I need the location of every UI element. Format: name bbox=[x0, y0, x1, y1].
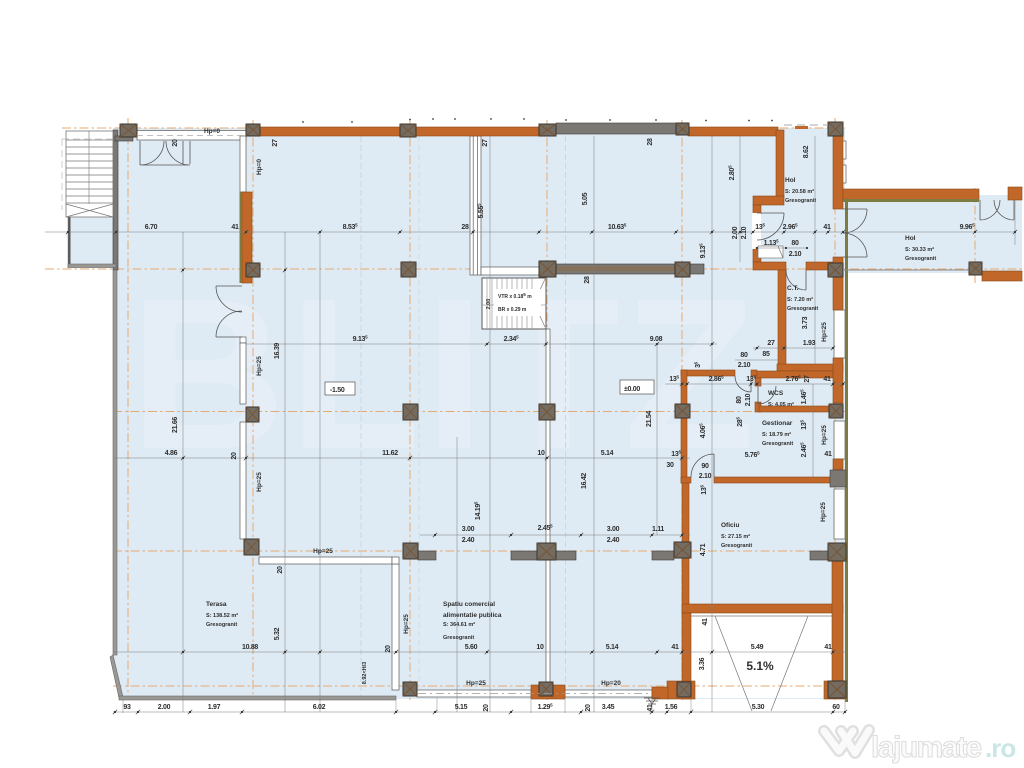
svg-text:Hp=25: Hp=25 bbox=[821, 425, 828, 445]
svg-text:80: 80 bbox=[736, 396, 743, 404]
svg-text:1.11: 1.11 bbox=[652, 526, 664, 533]
svg-text:5.30: 5.30 bbox=[752, 704, 765, 711]
svg-text:41: 41 bbox=[824, 451, 832, 458]
svg-text:1.295: 1.295 bbox=[538, 703, 553, 712]
svg-text:Hp=25: Hp=25 bbox=[403, 614, 410, 634]
svg-text:3.00: 3.00 bbox=[607, 526, 620, 533]
svg-text:8.92<H/3: 8.92<H/3 bbox=[362, 662, 368, 684]
svg-text:20: 20 bbox=[385, 645, 392, 653]
svg-text:Spatiu comercial: Spatiu comercial bbox=[443, 601, 495, 608]
svg-text:28: 28 bbox=[584, 276, 591, 284]
svg-text:90: 90 bbox=[701, 463, 709, 470]
svg-text:21.54: 21.54 bbox=[646, 411, 653, 427]
svg-text:BR x 0.29 m: BR x 0.29 m bbox=[498, 307, 527, 313]
svg-text:2.00: 2.00 bbox=[486, 299, 492, 310]
svg-text:10: 10 bbox=[537, 450, 545, 457]
svg-text:S: 364.61 m²: S: 364.61 m² bbox=[443, 621, 475, 628]
svg-text:1.93: 1.93 bbox=[803, 340, 816, 347]
svg-text:-1.50: -1.50 bbox=[330, 387, 345, 394]
svg-text:Gresogranit: Gresogranit bbox=[785, 198, 816, 204]
svg-text:27: 27 bbox=[767, 340, 775, 347]
svg-text:41: 41 bbox=[231, 224, 239, 231]
svg-text:2.10: 2.10 bbox=[789, 251, 802, 258]
svg-text:5.05: 5.05 bbox=[582, 192, 589, 205]
svg-text:C.T.: C.T. bbox=[787, 285, 799, 292]
svg-text:S: 18.79 m²: S: 18.79 m² bbox=[762, 431, 791, 438]
svg-text:41: 41 bbox=[647, 704, 654, 712]
svg-text:alimentatie publica: alimentatie publica bbox=[443, 612, 502, 619]
svg-text:Gestionar: Gestionar bbox=[762, 420, 793, 427]
svg-text:5.60: 5.60 bbox=[465, 644, 478, 651]
svg-text:2.10: 2.10 bbox=[741, 226, 748, 239]
svg-text:60: 60 bbox=[832, 704, 840, 711]
svg-text:80: 80 bbox=[791, 240, 799, 247]
svg-text:Hp=20: Hp=20 bbox=[601, 680, 621, 687]
svg-text:S: 30.33 m²: S: 30.33 m² bbox=[905, 246, 934, 253]
svg-text:2.40: 2.40 bbox=[462, 537, 475, 544]
svg-text:S: 7.20 m²: S: 7.20 m² bbox=[787, 296, 813, 303]
svg-text:11.62: 11.62 bbox=[382, 450, 398, 457]
svg-text:41: 41 bbox=[702, 618, 709, 626]
svg-text:4.71: 4.71 bbox=[700, 543, 707, 556]
svg-text:5.14: 5.14 bbox=[606, 644, 619, 651]
svg-text:Gresogranit: Gresogranit bbox=[206, 622, 237, 628]
svg-text:5.32: 5.32 bbox=[274, 627, 281, 640]
svg-text:16.39: 16.39 bbox=[274, 343, 281, 359]
svg-text:27: 27 bbox=[272, 139, 279, 147]
svg-text:Gresogranit: Gresogranit bbox=[762, 441, 793, 447]
svg-text:Hp=25: Hp=25 bbox=[256, 356, 263, 376]
svg-text:Hp=25: Hp=25 bbox=[820, 502, 827, 522]
svg-text:20: 20 bbox=[277, 566, 284, 574]
svg-text:2.10: 2.10 bbox=[738, 362, 751, 369]
svg-text:20: 20 bbox=[585, 704, 592, 712]
svg-text:Hol: Hol bbox=[785, 177, 796, 184]
svg-text:10.88: 10.88 bbox=[242, 644, 258, 651]
svg-text:Hp=25: Hp=25 bbox=[256, 472, 263, 492]
svg-text:27: 27 bbox=[482, 139, 489, 147]
svg-text:S: 20.58 m²: S: 20.58 m² bbox=[785, 188, 814, 195]
svg-text:6.02: 6.02 bbox=[313, 704, 326, 711]
svg-text:2.00: 2.00 bbox=[158, 704, 171, 711]
svg-text:5.1%: 5.1% bbox=[746, 659, 774, 673]
svg-text:2.10: 2.10 bbox=[699, 473, 712, 480]
svg-text:16.42: 16.42 bbox=[581, 473, 588, 489]
svg-text:41: 41 bbox=[823, 376, 831, 383]
svg-text:20: 20 bbox=[172, 139, 179, 147]
svg-text:3.36: 3.36 bbox=[699, 657, 706, 670]
svg-text:S: 27.15 m²: S: 27.15 m² bbox=[721, 533, 750, 540]
svg-text:Hol: Hol bbox=[905, 235, 916, 242]
svg-text:S: 4.05 m²: S: 4.05 m² bbox=[768, 401, 794, 408]
svg-text:.ro: .ro bbox=[985, 733, 1015, 763]
svg-text:Hp=0: Hp=0 bbox=[204, 128, 220, 135]
svg-text:20: 20 bbox=[231, 452, 238, 460]
svg-text:Hp=25: Hp=25 bbox=[313, 548, 333, 555]
svg-text:±0.00: ±0.00 bbox=[624, 386, 640, 393]
svg-text:S: 138.52 m²: S: 138.52 m² bbox=[206, 612, 238, 619]
svg-text:2.40: 2.40 bbox=[607, 537, 620, 544]
svg-text:10: 10 bbox=[536, 644, 544, 651]
svg-text:41: 41 bbox=[671, 644, 679, 651]
svg-text:41: 41 bbox=[824, 644, 832, 651]
svg-text:9.08: 9.08 bbox=[650, 336, 663, 343]
svg-text:8.62: 8.62 bbox=[803, 145, 810, 158]
svg-text:lajumate: lajumate bbox=[871, 731, 982, 764]
svg-text:27: 27 bbox=[804, 375, 811, 383]
svg-text:20: 20 bbox=[483, 704, 490, 712]
svg-text:1.97: 1.97 bbox=[208, 704, 221, 711]
svg-text:41: 41 bbox=[823, 224, 831, 231]
svg-text:VTR x 0.185 m: VTR x 0.185 m bbox=[498, 292, 532, 300]
svg-text:Gresogranit: Gresogranit bbox=[905, 256, 936, 262]
svg-text:Hp=25: Hp=25 bbox=[466, 680, 486, 687]
svg-text:2.00: 2.00 bbox=[732, 226, 739, 239]
svg-text:Gresogranit: Gresogranit bbox=[443, 635, 474, 641]
svg-text:93: 93 bbox=[123, 704, 131, 711]
svg-text:WCS: WCS bbox=[768, 390, 784, 397]
svg-text:Hp=25: Hp=25 bbox=[821, 322, 828, 342]
svg-text:5.14: 5.14 bbox=[601, 450, 614, 457]
svg-text:5.15: 5.15 bbox=[455, 704, 468, 711]
svg-text:28: 28 bbox=[647, 138, 654, 146]
svg-text:21.66: 21.66 bbox=[172, 417, 179, 433]
svg-text:4.86: 4.86 bbox=[165, 450, 178, 457]
svg-text:30: 30 bbox=[666, 462, 674, 469]
svg-text:1.56: 1.56 bbox=[665, 704, 678, 711]
svg-text:5.49: 5.49 bbox=[751, 644, 764, 651]
svg-text:Gresogranit: Gresogranit bbox=[787, 306, 818, 312]
svg-text:6.70: 6.70 bbox=[145, 224, 158, 231]
svg-text:2.10: 2.10 bbox=[745, 393, 752, 406]
svg-text:Hp=0: Hp=0 bbox=[256, 159, 263, 175]
svg-text:28: 28 bbox=[461, 224, 469, 231]
svg-text:3.00: 3.00 bbox=[462, 526, 475, 533]
svg-text:3.73: 3.73 bbox=[802, 316, 809, 329]
svg-text:Gresogranit: Gresogranit bbox=[721, 543, 752, 549]
svg-text:Oficiu: Oficiu bbox=[721, 522, 739, 529]
svg-text:Terasa: Terasa bbox=[206, 601, 227, 608]
svg-text:3.45: 3.45 bbox=[602, 704, 615, 711]
svg-text:80: 80 bbox=[740, 352, 748, 359]
svg-text:85: 85 bbox=[762, 351, 770, 358]
